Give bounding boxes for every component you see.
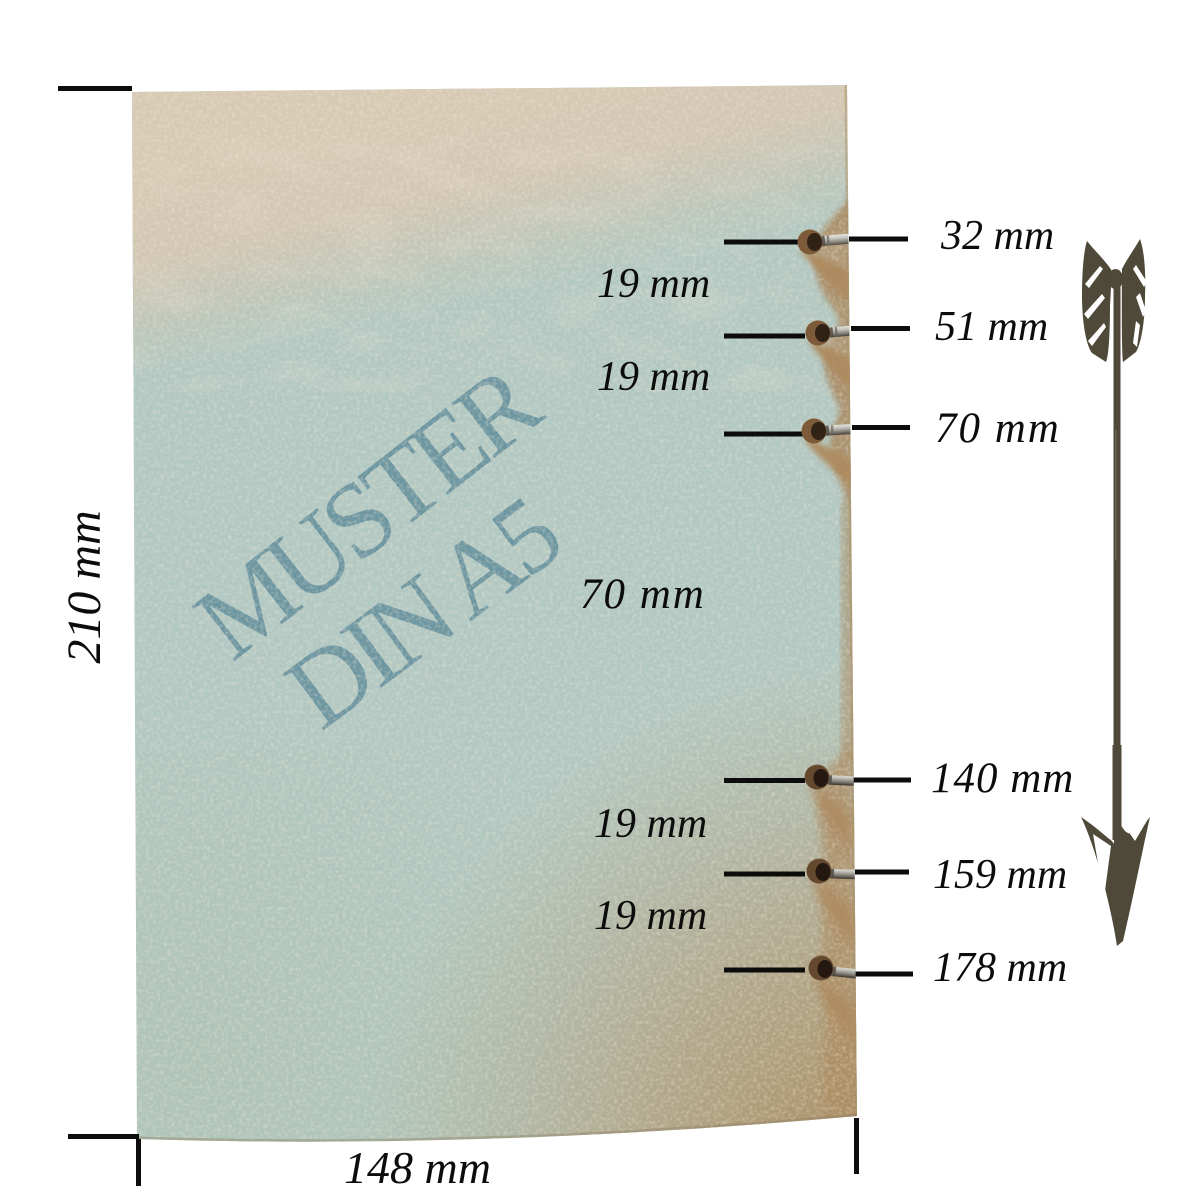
svg-text:178 mm: 178 mm bbox=[933, 945, 1067, 991]
svg-text:210 mm: 210 mm bbox=[58, 510, 111, 663]
svg-text:32 mm: 32 mm bbox=[940, 213, 1054, 259]
svg-text:19 mm: 19 mm bbox=[597, 261, 710, 307]
svg-text:148 mm: 148 mm bbox=[344, 1142, 491, 1193]
svg-text:140 mm: 140 mm bbox=[931, 755, 1074, 802]
svg-text:159 mm: 159 mm bbox=[933, 852, 1067, 898]
svg-text:19 mm: 19 mm bbox=[597, 354, 710, 400]
svg-text:70 mm: 70 mm bbox=[935, 405, 1061, 452]
svg-text:51 mm: 51 mm bbox=[935, 304, 1048, 350]
svg-text:19 mm: 19 mm bbox=[594, 801, 707, 847]
svg-text:19 mm: 19 mm bbox=[594, 893, 707, 939]
svg-text:70 mm: 70 mm bbox=[580, 571, 706, 618]
